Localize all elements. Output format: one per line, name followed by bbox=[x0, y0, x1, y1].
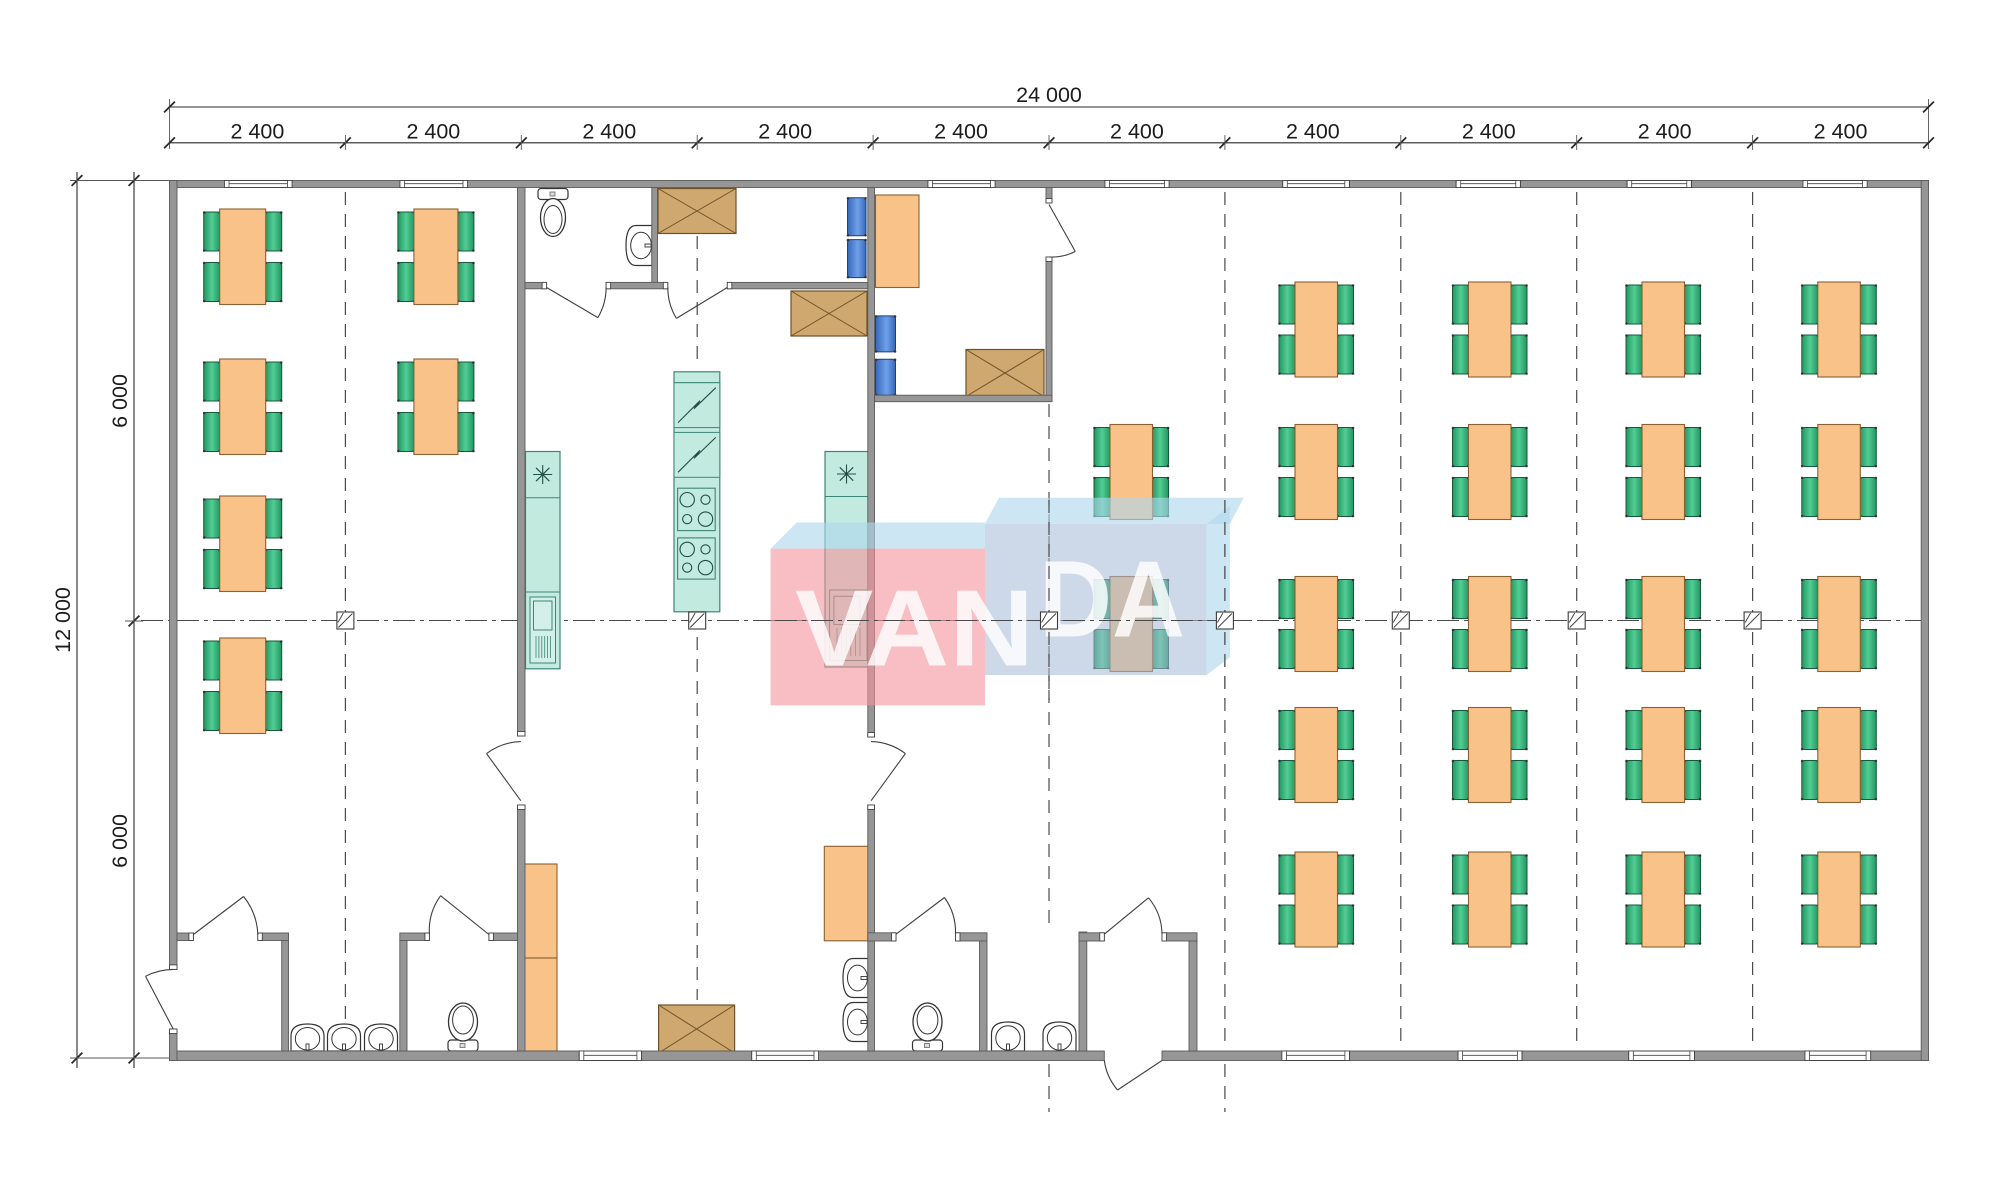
svg-text:2 400: 2 400 bbox=[582, 120, 636, 144]
svg-text:2 400: 2 400 bbox=[1638, 120, 1692, 144]
svg-text:VAN: VAN bbox=[795, 568, 1034, 690]
svg-text:2 400: 2 400 bbox=[406, 120, 460, 144]
svg-text:2 400: 2 400 bbox=[1814, 120, 1868, 144]
svg-text:DA: DA bbox=[1039, 539, 1185, 661]
svg-text:6 000: 6 000 bbox=[108, 814, 132, 868]
svg-text:2 400: 2 400 bbox=[934, 120, 988, 144]
svg-text:2 400: 2 400 bbox=[758, 120, 812, 144]
svg-text:2 400: 2 400 bbox=[231, 120, 285, 144]
svg-text:2 400: 2 400 bbox=[1110, 120, 1164, 144]
svg-text:6 000: 6 000 bbox=[108, 374, 132, 428]
svg-text:2 400: 2 400 bbox=[1462, 120, 1516, 144]
svg-text:2 400: 2 400 bbox=[1286, 120, 1340, 144]
svg-text:24 000: 24 000 bbox=[1016, 83, 1082, 107]
svg-text:12 000: 12 000 bbox=[51, 587, 75, 653]
